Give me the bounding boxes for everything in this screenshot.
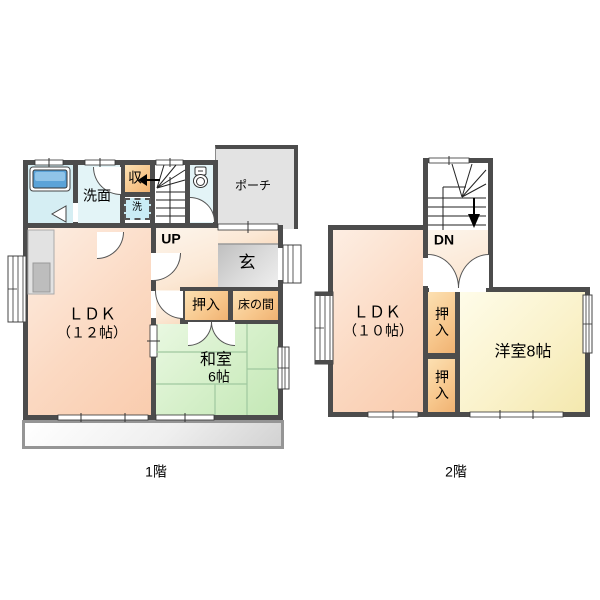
oshiire2-top-label: 押入 (434, 306, 450, 338)
stairs-dn-label: DN (434, 233, 454, 248)
oshiire1-label: 押入 (192, 298, 220, 313)
ldk1-size-label: （１２帖） (57, 326, 127, 341)
washroom-label: 洗面 (83, 189, 111, 204)
floorplan-linework (0, 0, 600, 600)
washer-label: 洗 (132, 203, 142, 214)
floor1-walls (23, 160, 283, 420)
floor1-label: 1階 (145, 465, 167, 480)
stairs-1f-icon (156, 165, 185, 223)
stairs-down-arrow-icon (468, 198, 480, 228)
ldk1-label: ＬＤＫ (68, 308, 116, 325)
genkan-label: 玄 (239, 254, 256, 272)
washitsu-label: 和室 (200, 353, 232, 370)
porch-label: ポーチ (235, 180, 271, 193)
tokonoma-label: 床の間 (238, 299, 274, 312)
ldk2-size-label: （１０帖） (343, 324, 413, 339)
floorplan-canvas: 洗面 収 洗 UP ポーチ 玄 ＬＤＫ （１２帖） 押入 床の間 和室 6帖 1… (0, 0, 600, 600)
yoshitsu-label: 洋室8帖 (495, 345, 552, 362)
toilet-icon (194, 167, 208, 188)
ldk2-label: ＬＤＫ (353, 306, 401, 323)
bath-door-icon (52, 206, 66, 222)
stairs-up-label: UP (161, 232, 180, 247)
kitchen-counter-icon (28, 230, 54, 294)
storage-label: 収 (128, 171, 142, 186)
washitsu-size-label: 6帖 (208, 370, 230, 385)
oshiire2-bottom-label: 押入 (434, 369, 450, 401)
floor2-label: 2階 (445, 465, 467, 480)
bathtub-icon (30, 167, 70, 191)
